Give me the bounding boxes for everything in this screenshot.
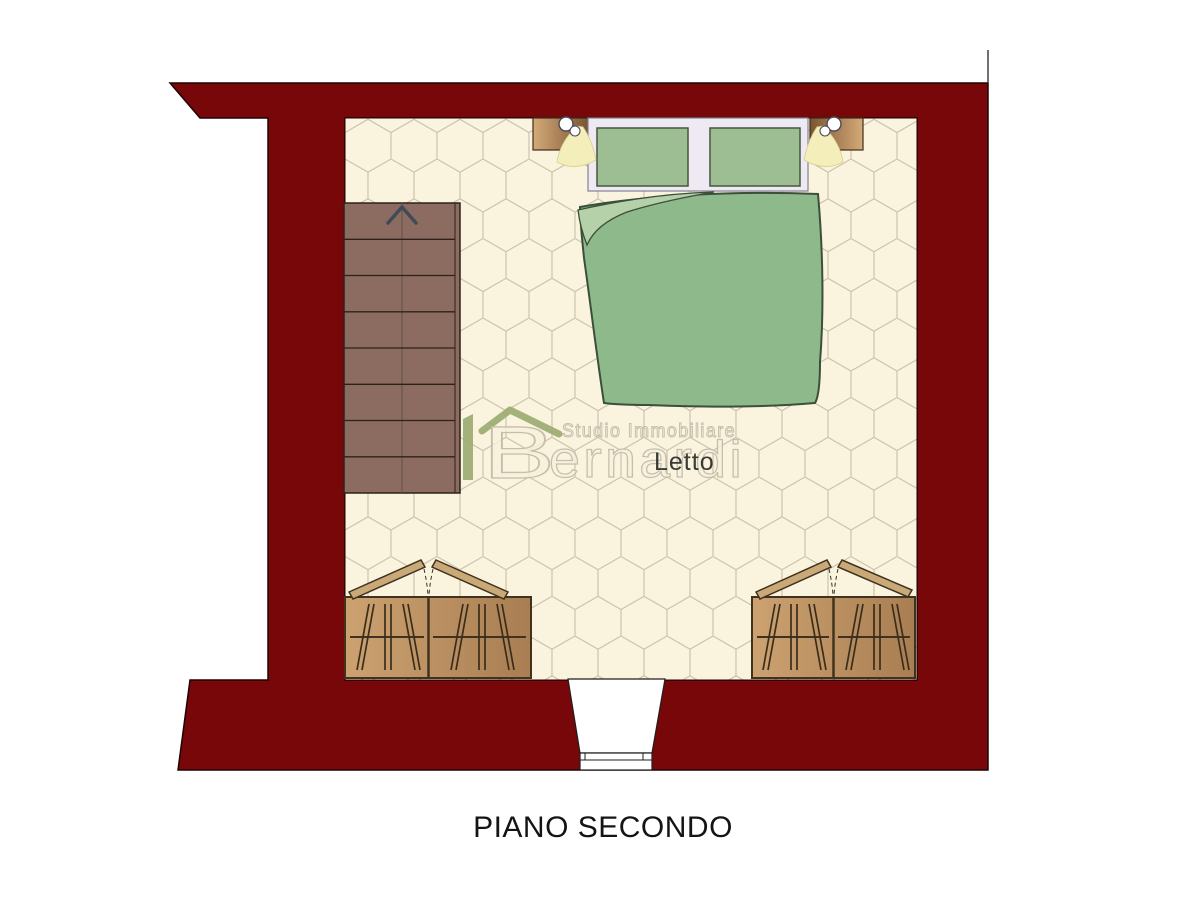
- plan-title: PIANO SECONDO: [473, 811, 733, 844]
- floor-plan-page: B Studio Immobiliare ernardi Letto PIANO…: [0, 0, 1200, 900]
- pillow-left: [597, 128, 688, 186]
- room-label: Letto: [654, 448, 715, 476]
- logo-monogram: B: [483, 411, 555, 494]
- staircase-up: [344, 203, 460, 493]
- bed-duvet: [580, 193, 822, 407]
- watermark-brand: ernardi: [549, 431, 745, 489]
- pillow-right: [710, 128, 800, 186]
- floor-plan-drawing: B Studio Immobiliare ernardi Letto PIANO…: [0, 0, 1200, 900]
- logo-i-bar: [463, 414, 473, 480]
- door-opening-threshold: [568, 679, 665, 770]
- window-headboard: [588, 118, 808, 191]
- double-bed: [578, 192, 822, 407]
